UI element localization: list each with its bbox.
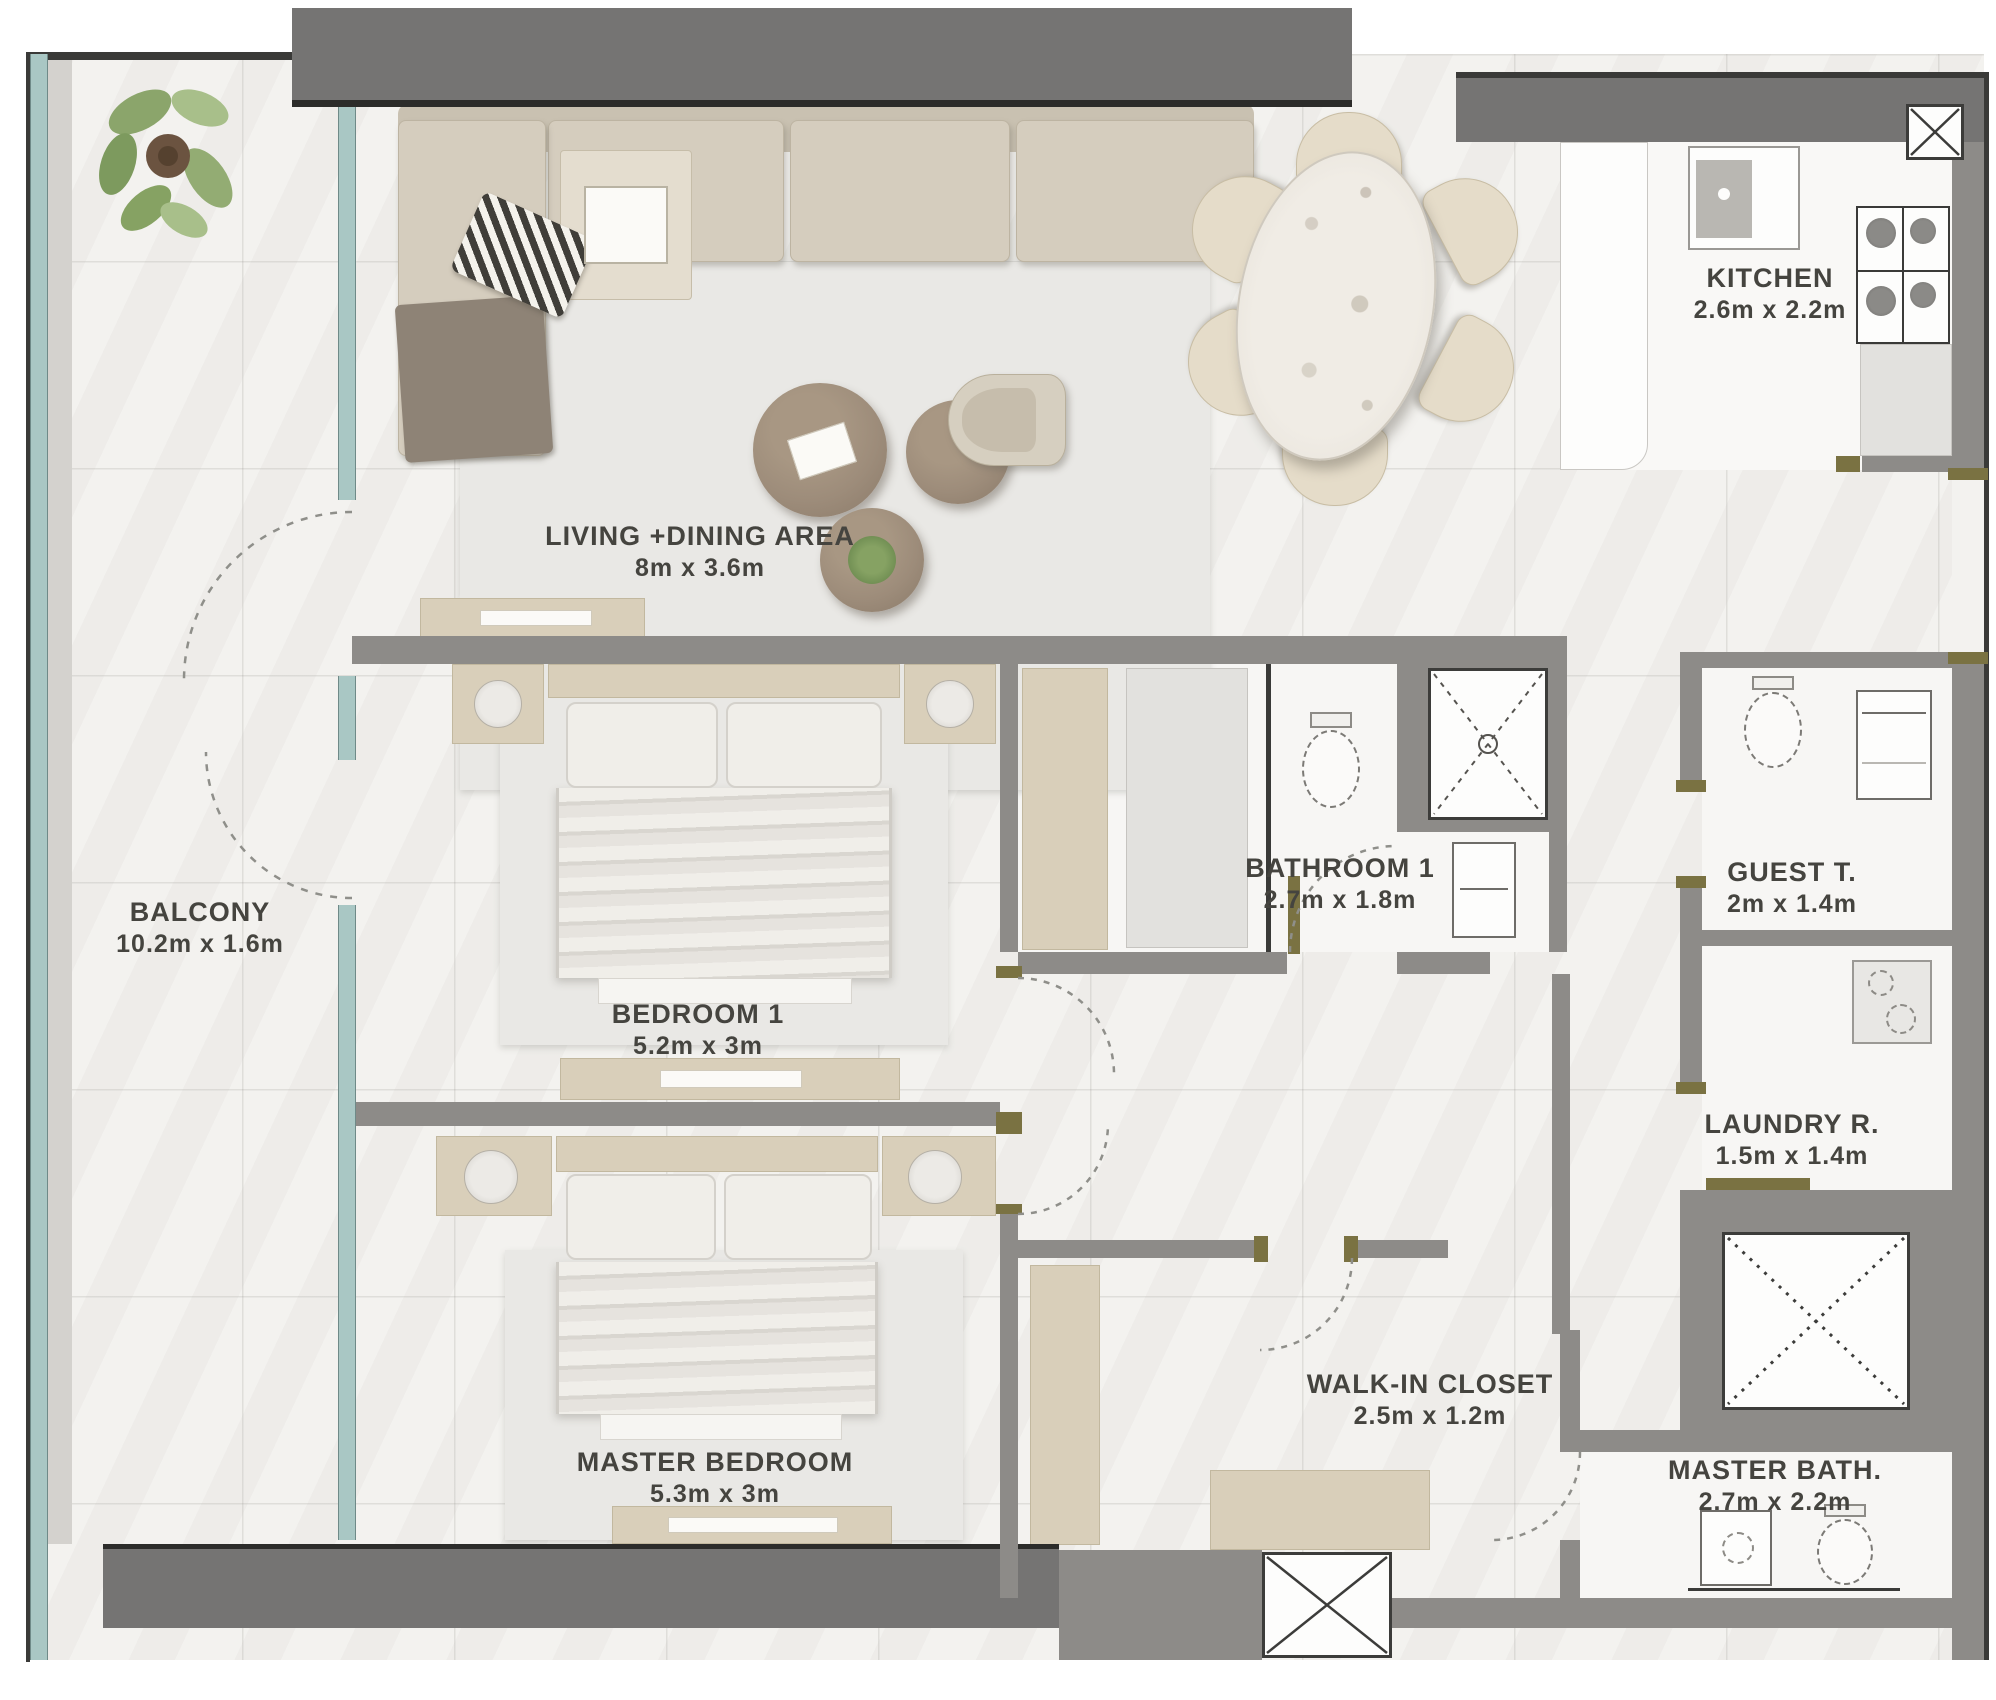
bedside-lamp-icon — [474, 680, 522, 728]
toilet-bowl — [1302, 730, 1360, 808]
bedroom-1-door-jamb-top — [996, 966, 1022, 978]
bathroom-1-bottom-wall-right — [1397, 952, 1490, 974]
bottom-wall-right-a — [1392, 1598, 1552, 1628]
living-bedroom-wall — [352, 636, 1397, 664]
serving-tray-icon — [584, 186, 668, 264]
bathroom-wardrobe — [1022, 668, 1108, 950]
master-bath-bottom-wall — [1552, 1598, 1984, 1628]
bench-cushion — [668, 1517, 838, 1533]
bedroom-1-door-jamb-bottom — [996, 1112, 1022, 1124]
console-tray — [480, 610, 592, 626]
room-name: WALK-IN CLOSET — [1200, 1368, 1660, 1401]
bedside-lamp-icon — [926, 680, 974, 728]
console-tray — [660, 1070, 802, 1088]
room-dims: 2.7m x 1.8m — [1160, 885, 1520, 916]
burner-icon — [1910, 218, 1936, 244]
kitchen-door-jamb — [1836, 456, 1860, 472]
label-walk-in-closet: WALK-IN CLOSET 2.5m x 1.2m — [1200, 1368, 1660, 1431]
shower-enclosure — [1428, 668, 1548, 820]
shower-x-icon — [1431, 671, 1545, 817]
shaft-x-icon — [1909, 107, 1961, 157]
bedroom-1-headboard — [548, 664, 900, 698]
living-glass-partition-upper — [338, 107, 356, 500]
service-shaft-bottom — [1262, 1552, 1392, 1658]
basin-divider — [1862, 762, 1926, 764]
room-name: LAUNDRY R. — [1652, 1108, 1932, 1141]
kitchen-bottom-stub — [1862, 456, 1952, 472]
guest-laundry-divider — [1680, 930, 1952, 946]
top-structural-slab — [292, 8, 1352, 100]
entry-door-jamb-top — [1948, 468, 1988, 480]
armchair-seat — [962, 388, 1036, 452]
room-name: BEDROOM 1 — [498, 998, 898, 1031]
room-name: BALCONY — [60, 896, 340, 929]
pillow-icon — [566, 702, 718, 788]
closet-door-jamb-right — [1344, 1236, 1358, 1262]
balcony-top-edge-line — [30, 52, 292, 60]
sink-faucet-icon — [1718, 188, 1730, 200]
shaft-x-icon — [1265, 1555, 1389, 1655]
master-bath-washbasin-icon — [1700, 1510, 1772, 1586]
washing-machine-icon — [1852, 960, 1932, 1044]
laundry-door-leaf — [1706, 1178, 1810, 1190]
closet-unit-left — [1030, 1265, 1100, 1545]
room-name: MASTER BATH. — [1600, 1454, 1950, 1487]
washer-drum-icon — [1868, 970, 1894, 996]
bedside-lamp-icon — [908, 1150, 962, 1204]
right-edge-line — [1984, 72, 1989, 1660]
service-shaft-top-right — [1906, 104, 1964, 160]
room-dims: 1.5m x 1.4m — [1652, 1141, 1932, 1172]
label-living-dining: LIVING +DINING AREA 8m x 3.6m — [420, 520, 980, 583]
pillow-icon — [726, 702, 882, 788]
toilet-bowl — [1817, 1519, 1873, 1585]
label-bedroom-1: BEDROOM 1 5.2m x 3m — [498, 998, 898, 1061]
basin-divider — [1862, 712, 1926, 714]
pillow-icon — [724, 1174, 872, 1260]
basin-bowl — [1722, 1532, 1754, 1564]
balcony-plant-icon — [80, 60, 260, 250]
master-duvet — [556, 1262, 878, 1414]
kitchen-counter-right — [1860, 344, 1952, 456]
label-guest-toilet: GUEST T. 2m x 1.4m — [1672, 856, 1912, 919]
burner-icon — [1866, 218, 1896, 248]
label-laundry: LAUNDRY R. 1.5m x 1.4m — [1652, 1108, 1932, 1171]
balcony-inner-band — [46, 54, 72, 1544]
bottom-structural-slab — [103, 1544, 1059, 1628]
room-name: GUEST T. — [1672, 856, 1912, 889]
bottom-slab-topline — [103, 1544, 1059, 1549]
entry-opening — [1952, 478, 1984, 652]
bedroom-1-duvet — [556, 788, 892, 978]
master-bath-left-wall-lower — [1560, 1540, 1580, 1598]
hall-foyer-divider-wall — [1552, 974, 1570, 1334]
closet-top-wall-right — [1350, 1240, 1448, 1258]
label-master-bath: MASTER BATH. 2.7m x 2.2m — [1600, 1454, 1950, 1517]
label-balcony: BALCONY 10.2m x 1.6m — [60, 896, 340, 959]
master-bath-counter-line — [1688, 1588, 1900, 1591]
laundry-door-jamb-top — [1676, 1082, 1706, 1094]
guest-washbasin-icon — [1856, 690, 1932, 800]
closet-unit-bottom — [1210, 1470, 1430, 1550]
sofa-seat-middle — [790, 120, 1010, 262]
closet-door-jamb-left — [1254, 1236, 1268, 1262]
room-name: BATHROOM 1 — [1160, 852, 1520, 885]
closet-left-wall — [1000, 1214, 1018, 1598]
master-bedroom-door-jamb-top — [996, 1124, 1022, 1134]
entry-door-jamb-bottom — [1948, 652, 1988, 664]
kitchen-structural-slab — [1456, 78, 1984, 142]
room-dims: 5.3m x 3m — [490, 1479, 940, 1510]
room-name: MASTER BEDROOM — [490, 1446, 940, 1479]
toilet-icon — [1300, 712, 1362, 812]
master-bath-top-stub — [1580, 1430, 1680, 1452]
service-shaft-main — [1722, 1232, 1910, 1410]
master-headboard — [556, 1136, 878, 1172]
toilet-tank — [1310, 712, 1352, 728]
room-dims: 2.6m x 2.2m — [1600, 295, 1940, 326]
master-bedroom-door-jamb-bottom — [996, 1204, 1022, 1214]
shaft-x-dotted-icon — [1725, 1235, 1907, 1407]
label-kitchen: KITCHEN 2.6m x 2.2m — [1600, 262, 1940, 325]
bathroom-1-bottom-wall-left — [1018, 952, 1287, 974]
balcony-outer-glass — [30, 54, 48, 1660]
top-slab-underline — [292, 100, 1352, 107]
closet-top-wall-left — [1018, 1240, 1260, 1258]
label-bathroom-1: BATHROOM 1 2.7m x 1.8m — [1160, 852, 1520, 915]
bathroom-1-left-wall — [1000, 651, 1018, 952]
bottom-wall-mid — [1059, 1550, 1262, 1660]
room-dims: 5.2m x 3m — [498, 1031, 898, 1062]
guest-left-wall-upper — [1680, 652, 1702, 790]
bedside-lamp-icon — [464, 1150, 518, 1204]
bedroom-glass-partition-lower — [338, 905, 356, 1540]
washer-drum-icon — [1886, 1004, 1916, 1034]
room-dims: 8m x 3.6m — [420, 553, 980, 584]
room-dims: 2m x 1.4m — [1672, 889, 1912, 920]
room-dims: 2.5m x 1.2m — [1200, 1401, 1660, 1432]
room-dims: 2.7m x 2.2m — [1600, 1487, 1950, 1518]
pillow-icon — [566, 1174, 716, 1260]
master-foot-sheet — [600, 1414, 842, 1440]
guest-top-wall — [1702, 652, 1952, 668]
floor-plan: BALCONY 10.2m x 1.6m LIVING +DINING AREA… — [0, 0, 1996, 1700]
right-wall — [1952, 142, 1984, 1660]
guest-toilet-icon — [1742, 676, 1804, 772]
bedroom-divider-wall — [352, 1102, 1000, 1126]
label-master-bedroom: MASTER BEDROOM 5.3m x 3m — [490, 1446, 940, 1509]
room-dims: 10.2m x 1.6m — [60, 929, 340, 960]
guest-door-jamb-top — [1676, 780, 1706, 792]
living-glass-partition-mid — [338, 676, 356, 760]
bathroom-1-right-wall — [1549, 664, 1567, 952]
room-name: KITCHEN — [1600, 262, 1940, 295]
room-name: LIVING +DINING AREA — [420, 520, 980, 553]
kitchen-sink-icon — [1688, 146, 1800, 250]
throw-blanket-icon — [395, 295, 554, 463]
toilet-bowl — [1744, 692, 1802, 768]
toilet-tank — [1752, 676, 1794, 690]
